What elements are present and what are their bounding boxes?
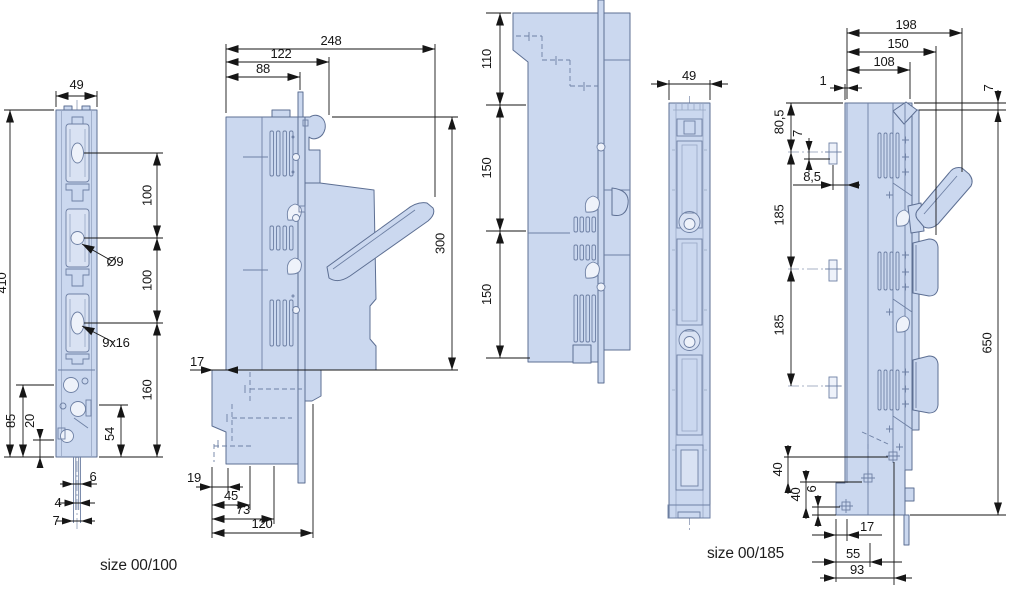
svg-text:150: 150 (479, 157, 494, 178)
label-size-00-185: size 00/185 (707, 545, 784, 562)
top-pin (298, 92, 303, 117)
handle-phase-1 (916, 168, 972, 228)
hole-9mm (71, 232, 84, 245)
fuse-switch-dimension-drawing: 49 410 100 100 160 Ø9 9x16 85 20 (0, 0, 1018, 600)
svg-text:7: 7 (790, 130, 805, 137)
svg-text:17: 17 (860, 519, 874, 534)
svg-text:100: 100 (140, 185, 155, 206)
svg-text:6: 6 (89, 469, 96, 484)
svg-text:160: 160 (140, 379, 155, 400)
svg-text:8,5: 8,5 (803, 169, 820, 184)
svg-text:20: 20 (22, 414, 37, 428)
svg-text:650: 650 (980, 332, 995, 353)
svg-text:300: 300 (433, 233, 448, 254)
svg-text:17: 17 (190, 354, 204, 369)
svg-text:108: 108 (873, 54, 894, 69)
label-size-00-100: size 00/100 (100, 557, 178, 574)
svg-text:150: 150 (887, 36, 908, 51)
svg-text:248: 248 (320, 33, 341, 48)
view-side-00-185: 198 150 108 1 80,5 185 185 7 8,5 (770, 17, 1006, 585)
svg-text:7: 7 (52, 513, 59, 528)
dim-40-lower: 40 (788, 470, 840, 519)
bottom-pin (904, 515, 909, 545)
svg-text:110: 110 (479, 49, 494, 69)
dim-4: 4 (54, 495, 95, 510)
side-main-plate (212, 117, 298, 464)
mounting-mast (598, 0, 604, 383)
dim-650-and-7-top: 7 650 (910, 84, 1006, 515)
dim-150-upper: 150 (479, 105, 526, 231)
svg-text:Ø9: Ø9 (107, 254, 124, 269)
svg-text:185: 185 (772, 314, 787, 335)
svg-text:410: 410 (0, 272, 9, 293)
dim-20: 20 (22, 414, 54, 468)
svg-text:45: 45 (224, 488, 238, 503)
dim-width-49: 49 (56, 77, 97, 107)
dim-height-410: 410 (0, 110, 54, 457)
dim-185-lower: 185 (772, 269, 792, 386)
view-rear-00-100: 110 150 150 (479, 0, 630, 383)
dim-185-upper: 185 (772, 152, 792, 269)
svg-text:55: 55 (846, 546, 860, 561)
dim-122: 122 (226, 46, 329, 115)
handle-phase-3 (913, 356, 938, 413)
rear-main-plate (513, 13, 598, 362)
svg-text:100: 100 (140, 270, 155, 291)
svg-text:49: 49 (682, 68, 696, 83)
dim-88: 88 (226, 61, 300, 90)
svg-text:7: 7 (981, 84, 996, 91)
dim-108: 108 (847, 54, 910, 99)
view-front-00-100: 49 410 100 100 160 Ø9 9x16 85 20 (0, 77, 178, 574)
dim-150-lower: 150 (479, 231, 530, 358)
svg-text:88: 88 (256, 61, 270, 76)
svg-text:73: 73 (236, 502, 250, 517)
svg-text:85: 85 (3, 414, 18, 428)
svg-text:40: 40 (770, 462, 785, 476)
view-front-00-185: 49 size 00/185 (651, 68, 784, 562)
svg-text:19: 19 (187, 470, 201, 485)
handle-phase-2 (913, 239, 938, 296)
svg-text:120: 120 (251, 516, 272, 531)
svg-text:1: 1 (819, 73, 826, 88)
svg-text:40: 40 (788, 487, 803, 501)
dim-width-49-185: 49 (651, 68, 728, 100)
svg-text:150: 150 (479, 284, 494, 305)
svg-text:80,5: 80,5 (772, 110, 787, 135)
dim-7-terminal: 7 (790, 130, 830, 172)
svg-text:122: 122 (270, 46, 291, 61)
dim-6-foot: 6 (804, 485, 836, 527)
view-side-00-100: 248 122 88 300 17 19 45 73 120 (187, 33, 458, 538)
dim-1: 1 (819, 73, 862, 100)
dim-54: 54 (99, 405, 128, 457)
technical-drawing-canvas: 49 410 100 100 160 Ø9 9x16 85 20 (0, 0, 1018, 600)
svg-text:198: 198 (895, 17, 916, 32)
svg-text:6: 6 (804, 485, 819, 492)
svg-text:54: 54 (102, 427, 117, 441)
svg-text:185: 185 (772, 204, 787, 225)
svg-text:49: 49 (69, 77, 83, 92)
svg-text:9x16: 9x16 (102, 335, 129, 350)
svg-text:4: 4 (54, 495, 61, 510)
slot-9x16 (71, 312, 84, 334)
svg-text:93: 93 (850, 562, 864, 577)
